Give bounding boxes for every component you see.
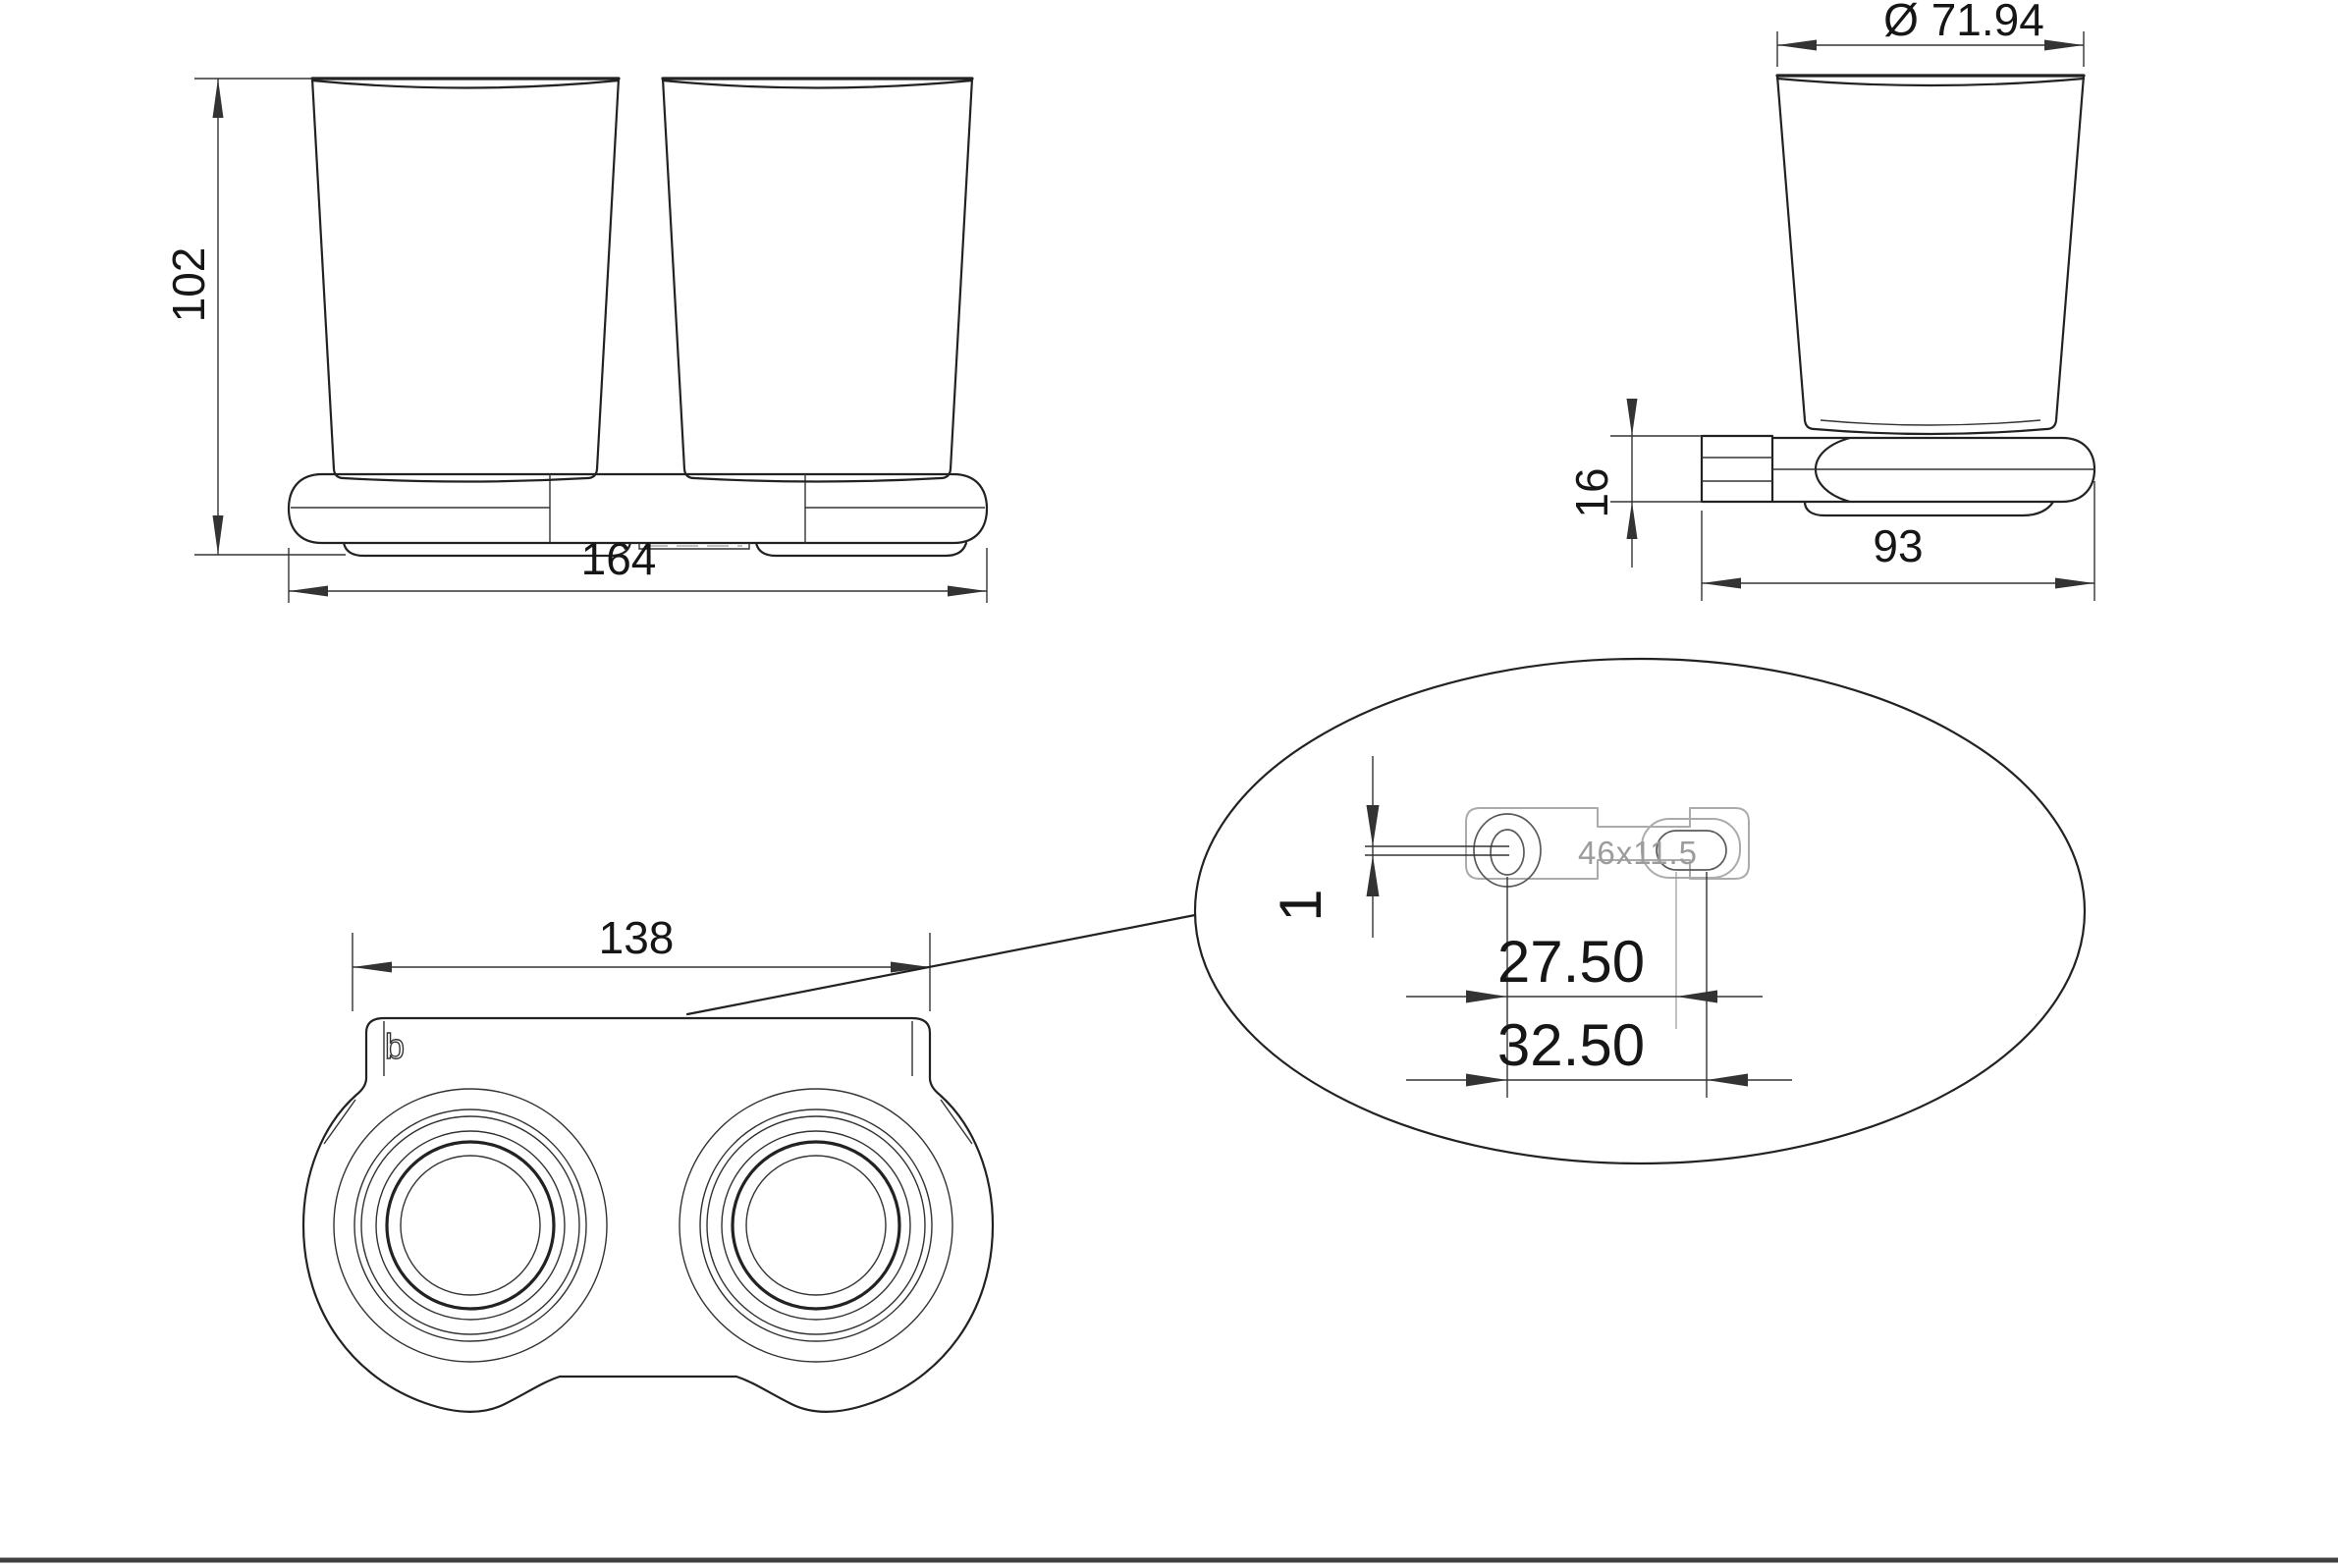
ring-circle (746, 1156, 886, 1295)
front-cup1-bottom (344, 478, 587, 482)
ring-circle (361, 1116, 579, 1334)
detail-leader-line (687, 915, 1195, 1014)
ring-circle (680, 1089, 952, 1362)
bottom-width-arrow-left (353, 962, 392, 973)
side-view: Ø 71.94 16 (1566, 0, 2094, 601)
side-diameter-arrow-left (1777, 40, 1817, 51)
front-width-arrow-right (948, 586, 987, 597)
brand-logo: b (385, 1026, 405, 1066)
side-cup (1777, 76, 2084, 434)
front-cup2-side-right (941, 79, 972, 478)
front-cup-left (312, 79, 619, 482)
front-cup1-side-left (312, 79, 344, 478)
ring-circle (401, 1156, 540, 1295)
side-diameter-dimension: Ø 71.94 (1777, 0, 2084, 67)
side-cup-rim-arc (1777, 79, 2084, 85)
technical-drawing-canvas: 102 164 Ø 71.94 (0, 0, 2338, 1568)
detail-offset-arrow-down (1367, 805, 1380, 846)
detail-hole-spacing-label: 27.50 (1497, 929, 1645, 995)
ring-bore-edge (733, 1142, 899, 1309)
side-cup-bottom-inner (1821, 420, 2040, 425)
detail-view: 46x11.5 1 27.50 32.50 (687, 659, 2085, 1163)
ring-circle (334, 1089, 607, 1362)
front-cup1-rim-arc (312, 81, 619, 88)
side-thickness-dimension: 16 (1566, 399, 1702, 568)
bottom-ring-right (680, 1089, 952, 1362)
side-cup-bottom (1815, 429, 2046, 434)
detail-hole-spacing-arrow-right (1676, 991, 1717, 1003)
front-height-arrow-down (213, 515, 224, 555)
bottom-width-dimension: 138 (353, 912, 930, 1011)
side-thickness-arrow-bottom (1627, 502, 1638, 539)
front-width-arrow-left (289, 586, 328, 597)
front-cup2-bottom-lip (756, 543, 966, 556)
detail-slot-spacing-dimension: 32.50 (1406, 1012, 1792, 1087)
detail-offset-dimension-label: 1 (1268, 889, 1333, 921)
detail-plate-size-label: 46x11.5 (1578, 835, 1698, 871)
ring-bore-edge (387, 1142, 554, 1309)
detail-hole-spacing-dimension: 27.50 (1406, 929, 1763, 1003)
front-height-dimension-label: 102 (163, 247, 214, 323)
detail-slot-spacing-label: 32.50 (1497, 1012, 1645, 1078)
side-depth-dimension: 93 (1702, 481, 2094, 601)
ring-circle (354, 1109, 586, 1341)
detail-offset-arrow-up (1367, 855, 1380, 896)
bottom-chamfer-right (941, 1100, 972, 1144)
side-wallplate (1702, 436, 1772, 502)
side-diameter-dimension-label: Ø 71.94 (1883, 0, 2044, 45)
side-holder-arm (1702, 436, 2094, 515)
detail-offset-dimension: 1 (1268, 756, 1509, 938)
side-depth-dimension-label: 93 (1873, 520, 1923, 571)
front-view: 102 164 (163, 79, 987, 603)
front-height-dimension: 102 (163, 79, 346, 555)
ring-circle (722, 1131, 910, 1320)
detail-screw-hole-outer (1474, 814, 1541, 887)
front-cup-right (663, 79, 972, 482)
side-diameter-arrow-right (2044, 40, 2084, 51)
side-cup-lip-below (1805, 502, 2053, 515)
front-cup2-side-left (663, 79, 694, 478)
bottom-body-outline (303, 1018, 993, 1412)
front-height-arrow-up (213, 79, 224, 118)
bottom-view: 138 b (303, 912, 993, 1412)
drawing-page: 102 164 Ø 71.94 (0, 0, 2338, 1568)
side-depth-arrow-right (2055, 578, 2094, 589)
ring-circle (376, 1131, 565, 1320)
front-width-dimension-label: 164 (581, 533, 657, 584)
bottom-chamfer-left (324, 1100, 355, 1144)
bottom-width-dimension-label: 138 (599, 912, 675, 963)
side-thickness-dimension-label: 16 (1566, 467, 1617, 517)
detail-screw-hole-inner (1491, 830, 1524, 875)
side-cup-side-left (1777, 76, 1815, 429)
ring-circle (707, 1116, 925, 1334)
front-cup2-bottom (694, 478, 941, 482)
side-thickness-arrow-top (1627, 399, 1638, 436)
detail-slot-spacing-arrow-right (1707, 1074, 1748, 1087)
front-cup1-side-right (587, 79, 619, 478)
bottom-ring-left (334, 1089, 607, 1362)
side-depth-arrow-left (1702, 578, 1741, 589)
side-cup-side-right (2046, 76, 2084, 429)
front-cup2-rim-arc (663, 81, 972, 88)
ring-circle (700, 1109, 932, 1341)
